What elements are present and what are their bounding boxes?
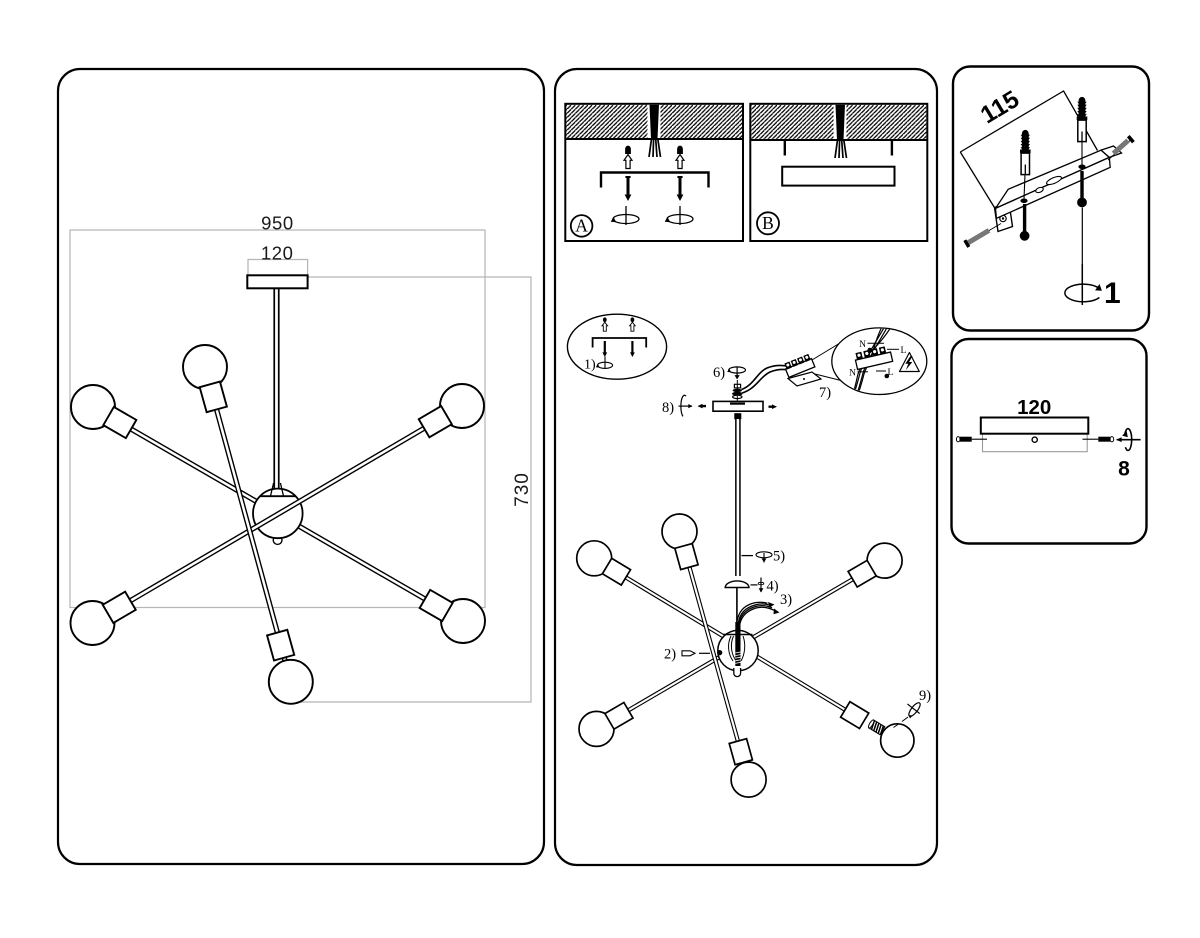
svg-text:3): 3)	[780, 592, 792, 608]
svg-text:120: 120	[261, 242, 294, 263]
svg-text:4): 4)	[767, 579, 779, 595]
svg-text:8): 8)	[662, 400, 674, 416]
svg-text:9): 9)	[919, 688, 931, 704]
svg-text:120: 120	[1017, 396, 1051, 419]
svg-text:N: N	[859, 340, 866, 350]
svg-text:B: B	[762, 213, 774, 233]
svg-text:2): 2)	[664, 647, 676, 663]
svg-text:730: 730	[512, 472, 533, 507]
svg-text:8: 8	[1118, 458, 1130, 481]
svg-text:N: N	[849, 369, 856, 379]
svg-text:5): 5)	[773, 549, 785, 565]
svg-text:6): 6)	[713, 365, 725, 381]
svg-text:7): 7)	[819, 385, 831, 401]
svg-text:950: 950	[261, 213, 294, 234]
svg-text:L: L	[901, 346, 907, 356]
svg-text:1: 1	[1104, 277, 1121, 310]
svg-text:1): 1)	[584, 358, 596, 373]
svg-text:A: A	[575, 216, 588, 236]
